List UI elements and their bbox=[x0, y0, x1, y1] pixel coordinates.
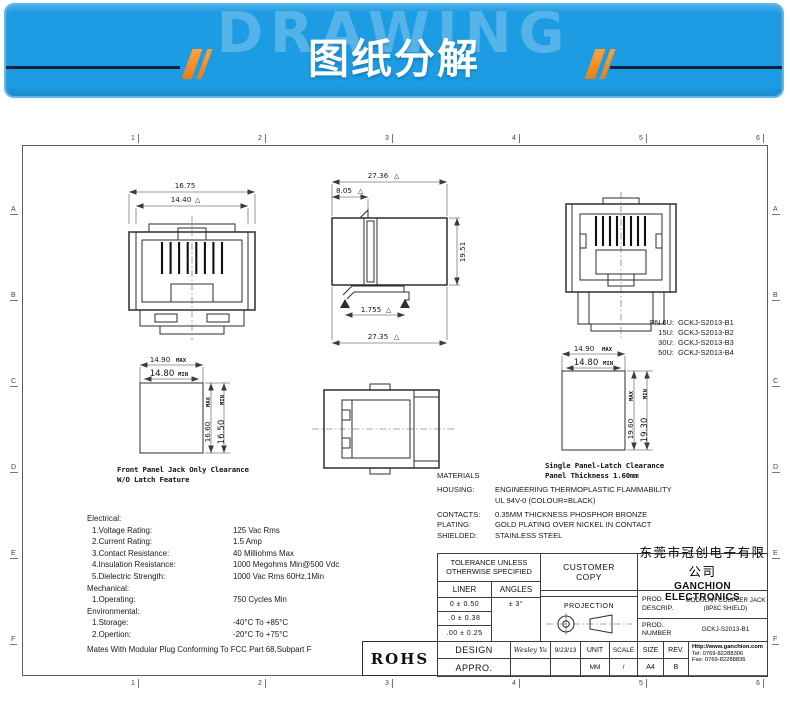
prod-label-line: PROD. bbox=[642, 622, 684, 630]
grid-col-label: 5 bbox=[639, 134, 647, 143]
cutout-latch-panel: 14.90 MAX 14.80 MIN 19.60 MAX 19.30 MIN bbox=[546, 344, 686, 469]
prod-label-line: NUMBER bbox=[642, 630, 684, 638]
grid-col-label: 3 bbox=[385, 134, 393, 143]
material-value: STAINLESS STEEL bbox=[495, 531, 562, 542]
spec-value: 125 Vac Rms bbox=[233, 525, 280, 537]
spec-row: 3.Contact Resistance:40 Milliohms Max bbox=[87, 548, 427, 560]
max-label: MAX bbox=[206, 396, 212, 407]
pn-label: PN 6U: bbox=[637, 318, 674, 328]
max-label: MAX bbox=[629, 390, 635, 401]
design-label: DESIGN bbox=[437, 641, 511, 659]
spec-row: 2.Current Rating:1.5 Amp bbox=[87, 536, 427, 548]
tolerance-header-line2: OTHERWISE SPECIFIED bbox=[446, 568, 532, 577]
dim-side-latch-gap: 1.755 bbox=[361, 305, 382, 314]
banner-left-line bbox=[6, 66, 180, 69]
page-title: 图纸分解 bbox=[6, 25, 782, 85]
company-fax: Fax: 0769-82288836 bbox=[692, 657, 746, 664]
spec-value: 1000 Megohms Min@500 Vdc bbox=[233, 559, 339, 571]
grid-row-label: D bbox=[10, 464, 18, 473]
spec-heading: Mechanical: bbox=[87, 583, 427, 595]
flag-note-icon: △ bbox=[394, 172, 400, 180]
pn-label: 50U: bbox=[637, 348, 674, 358]
grid-col-label: 4 bbox=[512, 134, 520, 143]
part-number-list: PN 6U:GCKJ-S2013-B1 15U:GCKJ-S2013-B2 30… bbox=[637, 318, 734, 358]
grid-col-label: 1 bbox=[131, 134, 139, 143]
prod-label-line: DESCRIP. bbox=[642, 605, 684, 613]
grid-row-label: E bbox=[10, 550, 18, 559]
min-label: MIN bbox=[178, 372, 189, 378]
size-label: SIZE bbox=[637, 641, 664, 659]
specs-section: Electrical: 1.Voltage Rating:125 Vac Rms… bbox=[87, 513, 427, 656]
tolerance-col-liner: LINER bbox=[437, 581, 492, 598]
grid-col-label: 6 bbox=[756, 134, 764, 143]
spec-label: 5.Dielectric Strength: bbox=[87, 571, 233, 583]
pn-value: GCKJ-S2013-B3 bbox=[678, 338, 734, 348]
material-row: PLATING:GOLD PLATING OVER NICKEL IN CONT… bbox=[437, 520, 757, 531]
materials-heading: MATERIALS bbox=[437, 471, 757, 480]
spec-label: 2.Current Rating: bbox=[87, 536, 233, 548]
spec-row: 1.Operating:750 Cycles Min bbox=[87, 594, 427, 606]
cutout-opening bbox=[140, 383, 203, 453]
size-value: A4 bbox=[637, 658, 664, 677]
customer-copy-cell: CUSTOMER COPY bbox=[540, 553, 638, 591]
prod-descrip-value: MODULAR COUPLER JACK (8P8C SHIELD) bbox=[684, 597, 767, 613]
max-label: MAX bbox=[602, 347, 613, 353]
part-number-row: 30U:GCKJ-S2013-B3 bbox=[637, 338, 734, 348]
tolerance-angles-value: ± 3° bbox=[491, 597, 541, 642]
dim-cutout-height-min: 19.30 bbox=[640, 418, 650, 443]
spec-heading: Environmental: bbox=[87, 606, 427, 618]
spec-row: 4.Insulation Resistance:1000 Megohms Min… bbox=[87, 559, 427, 571]
customer-copy-line2: COPY bbox=[576, 572, 602, 582]
prod-label-line: PROD. bbox=[642, 596, 684, 604]
min-label: MIN bbox=[603, 361, 614, 367]
material-label-spacer bbox=[437, 496, 495, 507]
spec-value: 1000 Vac Rms 60Hz,1Min bbox=[233, 571, 324, 583]
grid-col-label: 4 bbox=[512, 679, 520, 688]
company-website: Http://www.ganchion.com bbox=[692, 644, 763, 651]
tolerance-row: .0 ± 0.38 bbox=[437, 611, 492, 626]
flag-note-icon: △ bbox=[394, 333, 400, 341]
view-front-jack: 16.75 14.40 △ bbox=[115, 178, 270, 342]
material-row: HOUSING:ENGINEERING THERMOPLASTIC FLAMMA… bbox=[437, 485, 757, 496]
grid-row-label: C bbox=[10, 378, 18, 387]
part-number-row: 15U:GCKJ-S2013-B2 bbox=[637, 328, 734, 338]
projection-label: PROJECTION bbox=[564, 603, 614, 610]
dim-side-height: 19.51 bbox=[458, 242, 467, 263]
dim-front-inner-width: 14.40 bbox=[171, 195, 192, 204]
caption-line: W/O Latch Feature bbox=[117, 475, 249, 485]
spec-value: -40°C To +85°C bbox=[233, 617, 288, 629]
grid-col-label: 1 bbox=[131, 679, 139, 688]
dim-cutout-height-max: 16.60 bbox=[203, 421, 212, 442]
dim-cutout-width-min: 14.80 bbox=[574, 358, 599, 368]
grid-col-label: 2 bbox=[258, 134, 266, 143]
pn-value: GCKJ-S2013-B1 bbox=[678, 318, 734, 328]
spec-label: 2.Opertion: bbox=[87, 629, 233, 641]
dim-cutout-height-max: 19.60 bbox=[626, 418, 635, 439]
grid-row-label: C bbox=[772, 378, 780, 387]
company-tel: Tel: 0769-82288306 bbox=[692, 651, 743, 658]
material-value: GOLD PLATING OVER NICKEL IN CONTACT bbox=[495, 520, 651, 531]
material-row: SHIELDED:STAINLESS STEEL bbox=[437, 531, 757, 542]
dim-cutout-height-min: 16.50 bbox=[217, 420, 227, 445]
part-number-row: PN 6U:GCKJ-S2013-B1 bbox=[637, 318, 734, 328]
appro-label: APPRO. bbox=[437, 658, 511, 677]
spec-value: 40 Milliohms Max bbox=[233, 548, 294, 560]
dim-side-front-depth: 8.05 bbox=[336, 186, 352, 195]
spec-row: 2.Opertion:-20°C To +75°C bbox=[87, 629, 427, 641]
datum-target-icon bbox=[340, 299, 350, 308]
dim-cutout-width-max: 14.90 bbox=[150, 355, 171, 364]
material-row: CONTACTS:0.35MM THICKNESS PHOSPHOR BRONZ… bbox=[437, 510, 757, 521]
spec-value: 750 Cycles Min bbox=[233, 594, 287, 606]
spec-label: 1.Storage: bbox=[87, 617, 233, 629]
spec-label: 4.Insulation Resistance: bbox=[87, 559, 233, 571]
third-angle-projection-icon bbox=[544, 610, 634, 636]
scale-label: SCALE bbox=[609, 641, 638, 659]
pn-value: GCKJ-S2013-B4 bbox=[678, 348, 734, 358]
banner-right-line bbox=[610, 66, 782, 69]
scale-value: / bbox=[609, 658, 638, 677]
material-label: PLATING: bbox=[437, 520, 495, 531]
grid-row-label: A bbox=[772, 206, 780, 215]
prod-descrip-label: PROD. DESCRIP. bbox=[638, 596, 684, 613]
spec-label: Environmental: bbox=[87, 606, 228, 618]
materials-section: MATERIALS HOUSING:ENGINEERING THERMOPLAS… bbox=[437, 471, 757, 542]
spec-value: -20°C To +75°C bbox=[233, 629, 288, 641]
flag-note-icon: △ bbox=[358, 187, 364, 195]
material-label: HOUSING: bbox=[437, 485, 495, 496]
view-side-coupler: 27.36 △ 8.05 △ 1.755 △ 19.51 27.35 △ bbox=[316, 168, 488, 364]
dim-side-bottom-width: 27.35 bbox=[368, 332, 389, 341]
cutout-opening bbox=[562, 371, 625, 450]
material-label: SHIELDED: bbox=[437, 531, 495, 542]
min-label: MIN bbox=[220, 394, 226, 405]
contact-cell: Http://www.ganchion.com Tel: 0769-822883… bbox=[688, 641, 768, 677]
pn-label: 15U: bbox=[637, 328, 674, 338]
grid-col-label: 2 bbox=[258, 679, 266, 688]
caption-line: Single Panel-Latch Clearance bbox=[545, 461, 664, 471]
material-value: 0.35MM THICKNESS PHOSPHOR BRONZE bbox=[495, 510, 647, 521]
tolerance-row: 0 ± 0.50 bbox=[437, 597, 492, 612]
spec-label: 1.Voltage Rating: bbox=[87, 525, 233, 537]
dim-cutout-width-max: 14.90 bbox=[574, 344, 595, 353]
min-label: MIN bbox=[643, 388, 649, 399]
grid-row-label: A bbox=[10, 206, 18, 215]
dim-cutout-width-min: 14.80 bbox=[150, 369, 175, 379]
tolerance-header: TOLERANCE UNLESS OTHERWISE SPECIFIED bbox=[437, 553, 541, 582]
grid-col-label: 3 bbox=[385, 679, 393, 688]
dim-front-outer-width: 16.75 bbox=[175, 181, 196, 190]
grid-row-label: B bbox=[10, 292, 18, 301]
prod-descrip-cell: PROD. DESCRIP. MODULAR COUPLER JACK (8P8… bbox=[637, 590, 768, 619]
customer-copy-line1: CUSTOMER bbox=[563, 562, 615, 572]
part-number-row: 50U:GCKJ-S2013-B4 bbox=[637, 348, 734, 358]
grid-col-label: 5 bbox=[639, 679, 647, 688]
tolerance-row: .00 ± 0.25 bbox=[437, 625, 492, 642]
designer-name: Wesley Yu bbox=[510, 641, 551, 659]
unit-value: MM bbox=[580, 658, 610, 677]
pn-value: GCKJ-S2013-B2 bbox=[678, 328, 734, 338]
company-cell: 东莞市冠创电子有限公司 GANCHION ELECTRONICS bbox=[637, 553, 768, 591]
jack-contacts bbox=[596, 216, 645, 246]
rev-value: B bbox=[663, 658, 689, 677]
grid-row-label: E bbox=[772, 550, 780, 559]
material-row: UL 94V-0 (COLOUR=BLACK) bbox=[437, 496, 757, 507]
prod-descrip-line1: MODULAR COUPLER JACK bbox=[684, 597, 767, 605]
cutout-front-caption: Front Panel Jack Only Clearance W/O Latc… bbox=[117, 465, 249, 484]
rev-label: REV. bbox=[663, 641, 689, 659]
max-label: MAX bbox=[176, 358, 187, 364]
banner: DRAWING 图纸分解 bbox=[4, 3, 784, 98]
caption-line: Front Panel Jack Only Clearance bbox=[117, 465, 249, 475]
flag-note-icon: △ bbox=[195, 196, 201, 204]
cutout-front-panel: 14.90 MAX 14.80 MIN 16.60 MAX 16.50 MIN bbox=[118, 352, 258, 472]
projection-cell: PROJECTION bbox=[540, 596, 638, 642]
design-date: 9/23/13 bbox=[550, 641, 581, 659]
spec-row: 5.Dielectric Strength:1000 Vac Rms 60Hz,… bbox=[87, 571, 427, 583]
spec-row: 1.Voltage Rating:125 Vac Rms bbox=[87, 525, 427, 537]
drawing-page: DRAWING 图纸分解 1 2 3 4 5 6 1 2 3 4 5 6 A B… bbox=[0, 0, 790, 712]
material-label: CONTACTS: bbox=[437, 510, 495, 521]
spec-label: 3.Contact Resistance: bbox=[87, 548, 233, 560]
spec-heading: Electrical: bbox=[87, 513, 427, 525]
prod-descrip-line2: (8P8C SHIELD) bbox=[684, 605, 767, 613]
unit-label: UNIT bbox=[580, 641, 610, 659]
spec-value: 1.5 Amp bbox=[233, 536, 262, 548]
spec-label: Electrical: bbox=[87, 513, 228, 525]
grid-row-label: F bbox=[10, 636, 17, 645]
dim-side-top-width: 27.36 bbox=[368, 171, 389, 180]
spec-label: Mechanical: bbox=[87, 583, 228, 595]
grid-row-label: D bbox=[772, 464, 780, 473]
flag-note-icon: △ bbox=[386, 306, 392, 314]
prod-number-cell: PROD. NUMBER GCKJ-S2013-B1 bbox=[637, 618, 768, 642]
rohs-mark: ROHS bbox=[362, 641, 438, 676]
grid-col-label: 6 bbox=[756, 679, 764, 688]
coupler-side-outline bbox=[332, 210, 447, 300]
spec-label: 1.Operating: bbox=[87, 594, 233, 606]
company-name-cn: 东莞市冠创电子有限公司 bbox=[638, 542, 767, 580]
appro-name-empty bbox=[510, 658, 551, 677]
tolerance-col-angles: ANGLES bbox=[491, 581, 541, 598]
view-top-coupler bbox=[312, 374, 454, 486]
grid-row-label: F bbox=[772, 636, 779, 645]
appro-date-empty bbox=[550, 658, 581, 677]
grid-row-label: B bbox=[772, 292, 780, 301]
material-value: ENGINEERING THERMOPLASTIC FLAMMABILITY bbox=[495, 485, 672, 496]
spec-row: 1.Storage:-40°C To +85°C bbox=[87, 617, 427, 629]
material-value: UL 94V-0 (COLOUR=BLACK) bbox=[495, 496, 595, 507]
prod-number-value: GCKJ-S2013-B1 bbox=[684, 626, 767, 634]
pn-label: 30U: bbox=[637, 338, 674, 348]
prod-number-label: PROD. NUMBER bbox=[638, 622, 684, 639]
